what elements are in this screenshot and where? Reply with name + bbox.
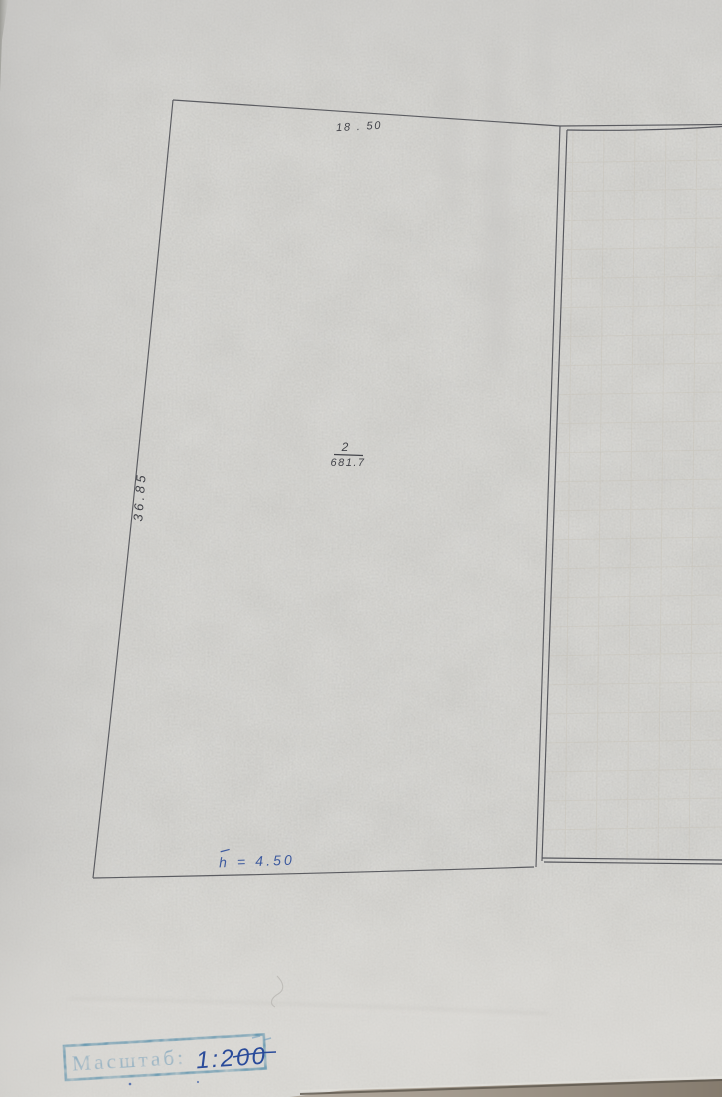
svg-text:18 . 50: 18 . 50 <box>336 120 383 134</box>
svg-text:2: 2 <box>341 440 349 454</box>
svg-text:h = 4.50: h = 4.50 <box>219 852 295 871</box>
svg-text:681.7: 681.7 <box>330 457 365 469</box>
svg-text:1:200: 1:200 <box>195 1042 268 1074</box>
